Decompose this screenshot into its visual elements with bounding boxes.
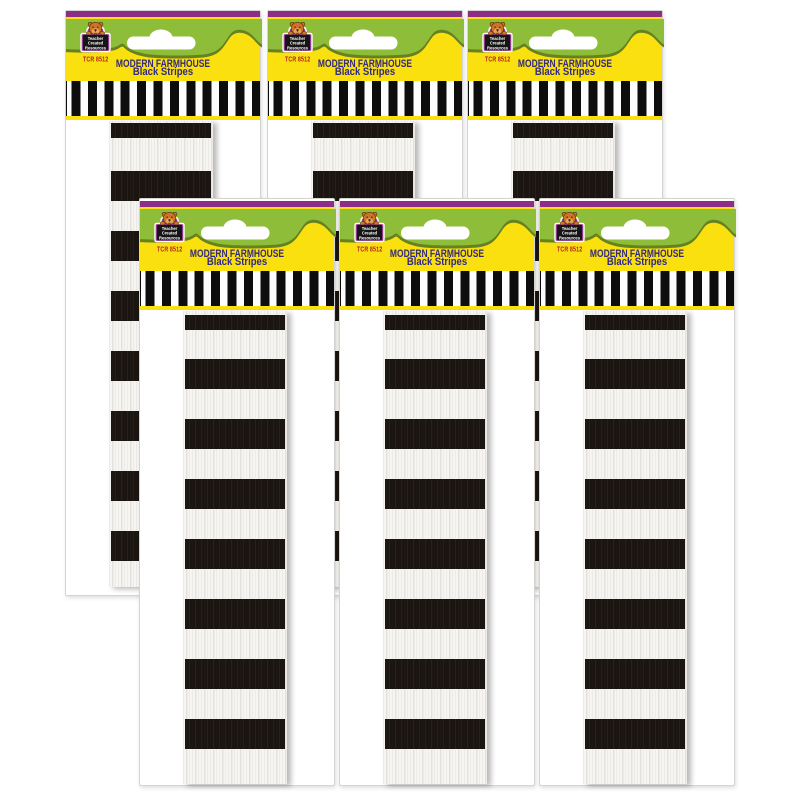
svg-text:Created: Created bbox=[361, 230, 377, 235]
svg-text:Resources: Resources bbox=[487, 45, 509, 50]
svg-text:Resources: Resources bbox=[359, 235, 381, 240]
svg-text:Teacher: Teacher bbox=[361, 225, 377, 230]
svg-text:Created: Created bbox=[88, 40, 104, 45]
svg-text:Teacher: Teacher bbox=[489, 35, 505, 40]
svg-text:Resources: Resources bbox=[85, 45, 107, 50]
svg-text:Created: Created bbox=[562, 230, 578, 235]
svg-text:Teacher: Teacher bbox=[289, 35, 305, 40]
svg-text:Resources: Resources bbox=[159, 235, 181, 240]
svg-text:Created: Created bbox=[489, 40, 505, 45]
svg-text:Teacher: Teacher bbox=[161, 225, 177, 230]
svg-text:Resources: Resources bbox=[559, 235, 581, 240]
svg-text:Resources: Resources bbox=[287, 45, 309, 50]
svg-text:Teacher: Teacher bbox=[562, 225, 578, 230]
svg-text:Teacher: Teacher bbox=[88, 35, 104, 40]
svg-text:Created: Created bbox=[289, 40, 305, 45]
svg-text:Created: Created bbox=[161, 230, 177, 235]
